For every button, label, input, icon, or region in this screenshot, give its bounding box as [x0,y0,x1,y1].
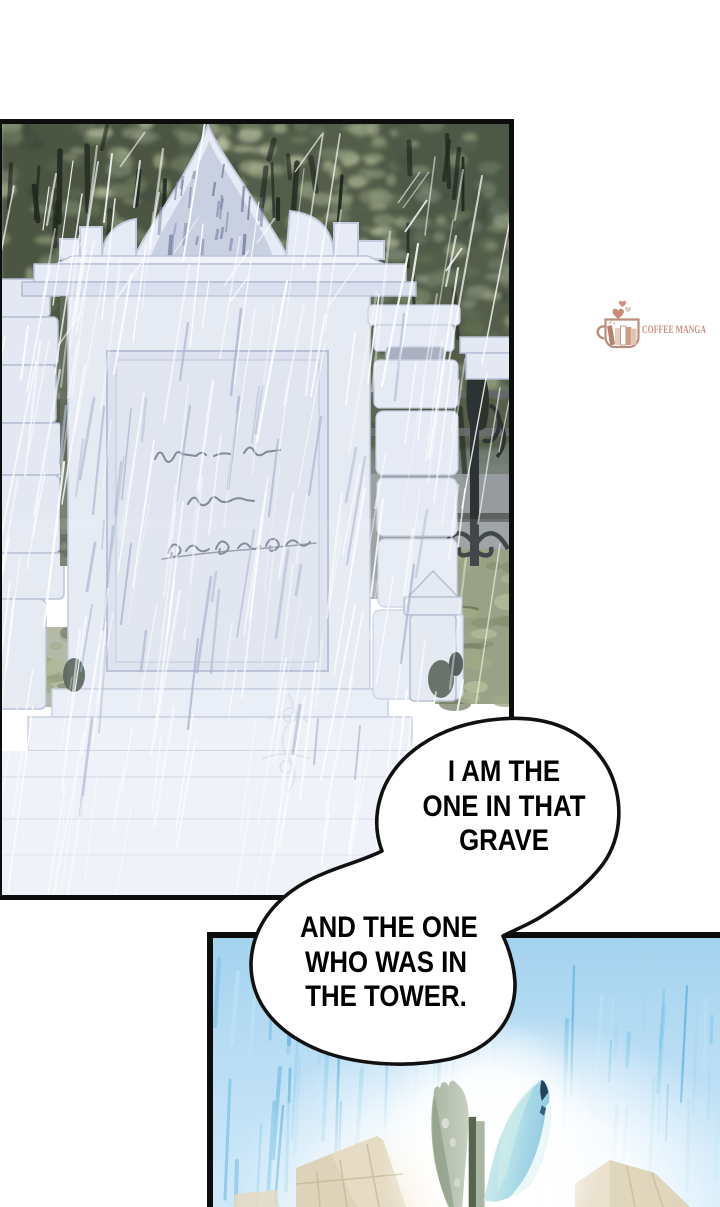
svg-text:COFFEE MANGA: COFFEE MANGA [642,324,706,336]
